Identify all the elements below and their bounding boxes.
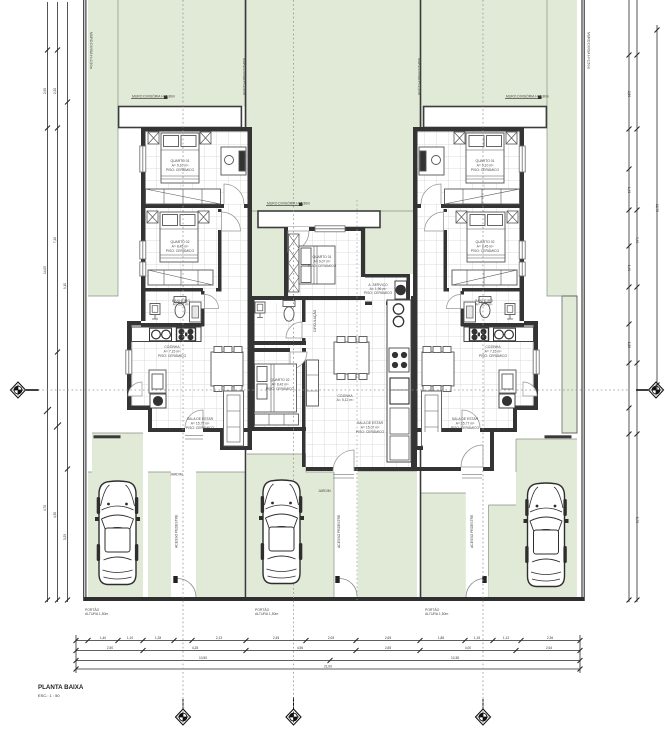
svg-text:A= 8,42 m²: A= 8,42 m² xyxy=(272,383,290,387)
svg-text:QUARTO 02: QUARTO 02 xyxy=(475,240,494,244)
svg-text:A= 9,10 m²: A= 9,10 m² xyxy=(172,164,190,168)
svg-text:12,75: 12,75 xyxy=(655,204,659,212)
svg-text:PISO: CERÂMICO: PISO: CERÂMICO xyxy=(186,426,215,430)
svg-text:QUARTO 01: QUARTO 01 xyxy=(312,255,331,259)
svg-text:1,86: 1,86 xyxy=(438,636,444,640)
svg-text:COZINHA: COZINHA xyxy=(164,345,180,349)
svg-text:QUARTO 02: QUARTO 02 xyxy=(270,378,289,382)
svg-text:2,50: 2,50 xyxy=(43,88,47,94)
svg-text:JARDIM: JARDIM xyxy=(170,473,183,477)
svg-text:PISO: CERÂMICO: PISO: CERÂMICO xyxy=(166,249,195,253)
svg-text:1,15: 1,15 xyxy=(474,636,480,640)
svg-text:2,45: 2,45 xyxy=(273,636,279,640)
svg-text:4,70: 4,70 xyxy=(43,505,47,511)
svg-text:PISO: CERÂMICO: PISO: CERÂMICO xyxy=(451,426,480,430)
svg-text:9,10: 9,10 xyxy=(63,283,67,289)
svg-text:PISO: CERÂMICO: PISO: CERÂMICO xyxy=(471,249,500,253)
svg-text:MURO DIVISA H=2,50m: MURO DIVISA H=2,50m xyxy=(242,58,246,95)
svg-text:10,50: 10,50 xyxy=(199,656,207,660)
svg-text:ACESSO PEDESTRE: ACESSO PEDESTRE xyxy=(175,514,179,548)
svg-text:JARDIM: JARDIM xyxy=(318,489,331,493)
svg-text:PLANTA BAIXA: PLANTA BAIXA xyxy=(38,684,84,691)
svg-text:1,40: 1,40 xyxy=(627,265,631,271)
svg-text:SALA DE ESTAR: SALA DE ESTAR xyxy=(357,421,384,425)
svg-text:A= 9,10 m²: A= 9,10 m² xyxy=(477,164,495,168)
svg-text:1,12: 1,12 xyxy=(503,636,509,640)
svg-text:ESC.: 1 : 50: ESC.: 1 : 50 xyxy=(38,693,60,698)
svg-text:1,10: 1,10 xyxy=(127,636,133,640)
svg-text:7,40: 7,40 xyxy=(635,237,639,243)
svg-text:MURO DIVISÓRIA H=1,80m: MURO DIVISÓRIA H=1,80m xyxy=(506,94,549,99)
svg-text:A= 15,07 m²: A= 15,07 m² xyxy=(361,426,380,430)
svg-text:4,56: 4,56 xyxy=(297,646,303,650)
svg-text:PISO: CERÂMICO: PISO: CERÂMICO xyxy=(364,291,393,295)
svg-text:PISO: CERÂMICO: PISO: CERÂMICO xyxy=(158,354,187,358)
svg-text:A= 3,07 m²: A= 3,07 m² xyxy=(476,303,494,307)
svg-text:14,05: 14,05 xyxy=(43,266,47,274)
svg-text:2,65: 2,65 xyxy=(385,646,391,650)
svg-text:A= 3,07 m²: A= 3,07 m² xyxy=(173,303,191,307)
svg-text:4,30: 4,30 xyxy=(53,512,57,518)
svg-text:ALTURA 1,50m: ALTURA 1,50m xyxy=(85,612,108,616)
svg-text:2,50: 2,50 xyxy=(107,646,113,650)
svg-text:MURO DIVISA H=2,50m: MURO DIVISA H=2,50m xyxy=(417,58,421,95)
svg-text:2,50: 2,50 xyxy=(627,91,631,97)
svg-text:ALTURA 1,50m: ALTURA 1,50m xyxy=(255,612,278,616)
svg-text:PISO: CERÂMICO: PISO: CERÂMICO xyxy=(166,168,195,172)
svg-text:ACESSO PEDESTRE: ACESSO PEDESTRE xyxy=(337,514,341,548)
svg-text:A= 8,45 m²: A= 8,45 m² xyxy=(477,245,495,249)
svg-text:PISO: CERÂMICO: PISO: CERÂMICO xyxy=(356,430,385,434)
svg-text:QUARTO 01: QUARTO 01 xyxy=(475,159,494,163)
svg-text:5,70: 5,70 xyxy=(635,517,639,523)
svg-text:1,40: 1,40 xyxy=(100,636,106,640)
svg-text:2,13: 2,13 xyxy=(216,636,222,640)
svg-text:MURO DIVISÓRIA H=1,80m: MURO DIVISÓRIA H=1,80m xyxy=(132,94,175,99)
svg-text:1,43: 1,43 xyxy=(627,187,631,193)
svg-text:21,00: 21,00 xyxy=(324,665,332,669)
svg-text:A= 7,15 m²: A= 7,15 m² xyxy=(164,350,182,354)
svg-text:MURO DIVISA H=2,50m: MURO DIVISA H=2,50m xyxy=(587,32,591,69)
svg-text:A= 7,15 m²: A= 7,15 m² xyxy=(485,350,503,354)
svg-text:2,20: 2,20 xyxy=(53,88,57,94)
svg-text:2,05: 2,05 xyxy=(328,636,334,640)
svg-text:1,35: 1,35 xyxy=(627,342,631,348)
svg-text:4,00: 4,00 xyxy=(465,646,471,650)
svg-text:QUARTO 01: QUARTO 01 xyxy=(170,159,189,163)
svg-text:7,40: 7,40 xyxy=(53,237,57,243)
svg-text:3,25: 3,25 xyxy=(63,534,67,540)
svg-text:10,38: 10,38 xyxy=(451,656,459,660)
svg-text:1,28: 1,28 xyxy=(155,636,161,640)
svg-text:2,36: 2,36 xyxy=(547,636,553,640)
svg-text:QUARTO 02: QUARTO 02 xyxy=(170,240,189,244)
svg-text:A= 8,45 m²: A= 8,45 m² xyxy=(172,245,190,249)
svg-text:SALA DE ESTAR: SALA DE ESTAR xyxy=(187,417,214,421)
svg-text:MURO DIVISÓRIA H=1,80m: MURO DIVISÓRIA H=1,80m xyxy=(267,201,310,206)
svg-text:PISO: CERÂMICO: PISO: CERÂMICO xyxy=(308,264,337,268)
svg-text:ACESSO PEDESTRE: ACESSO PEDESTRE xyxy=(470,514,474,548)
svg-text:ALTURA 1,50m: ALTURA 1,50m xyxy=(425,612,448,616)
svg-text:PISO: CERÂMICO: PISO: CERÂMICO xyxy=(471,168,500,172)
svg-text:2,64: 2,64 xyxy=(546,646,552,650)
svg-text:MURO DIVISA H=2,50m: MURO DIVISA H=2,50m xyxy=(89,32,93,69)
svg-text:SALA DE ESTAR: SALA DE ESTAR xyxy=(452,417,479,421)
svg-text:4,28: 4,28 xyxy=(192,646,198,650)
svg-text:CIRCULAÇÃO: CIRCULAÇÃO xyxy=(312,309,317,332)
svg-text:A= 5,12 m²: A= 5,12 m² xyxy=(337,398,355,402)
svg-text:A= 9,07 m²: A= 9,07 m² xyxy=(314,260,332,264)
svg-text:A= 15,77 m²: A= 15,77 m² xyxy=(191,422,210,426)
svg-text:A= 15,77 m²: A= 15,77 m² xyxy=(456,422,475,426)
svg-text:2,65: 2,65 xyxy=(385,636,391,640)
svg-text:COZINHA: COZINHA xyxy=(485,345,501,349)
